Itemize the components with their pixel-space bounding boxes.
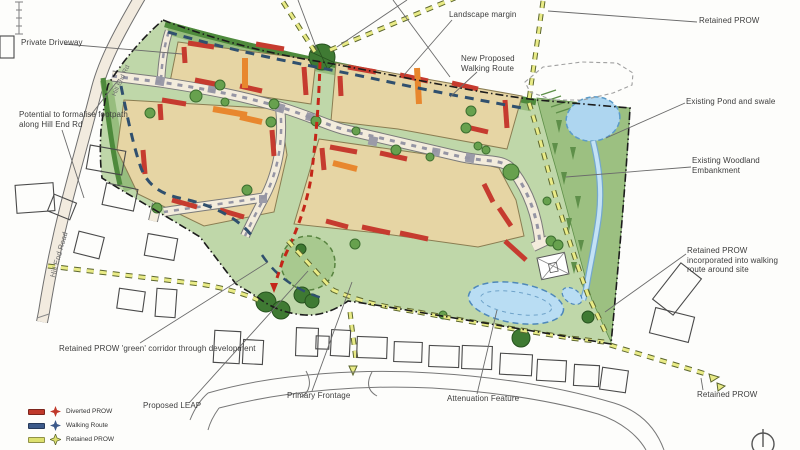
masterplan-drawing — [0, 0, 800, 450]
label-retained-prow-bottom: Retained PROW — [697, 390, 757, 400]
label-private-driveway: Private Driveway — [21, 38, 83, 48]
label-primary-frontage: Primary Frontage — [287, 391, 350, 401]
label-landscape-margin: Landscape margin — [449, 10, 516, 20]
walking-route-arrow-icon — [50, 420, 61, 431]
legend-label-diverted-prow: Diverted PROW — [66, 408, 112, 415]
diverted-prow-dash-swatch — [28, 409, 45, 415]
label-proposed-leap: Proposed LEAP — [143, 401, 201, 411]
north-arrow-icon — [752, 429, 774, 450]
label-prow-incorporated: Retained PROW incorporated into walking … — [687, 246, 795, 275]
retained-prow-dash-swatch — [28, 437, 45, 443]
legend-item-retained-prow: Retained PROW — [28, 433, 114, 446]
diverted-prow-arrow-icon — [50, 406, 61, 417]
label-new-walking-route: New Proposed Walking Route — [461, 54, 525, 73]
legend-label-walking-route: Walking Route — [66, 422, 108, 429]
legend-item-walking-route: Walking Route — [28, 419, 114, 432]
existing-streets — [190, 371, 664, 450]
scale-marker — [15, 2, 23, 34]
legend-item-diverted-prow: Diverted PROW — [28, 405, 114, 418]
label-existing-pond: Existing Pond and swale — [686, 97, 775, 107]
site-masterplan: Private Driveway Potential to formalise … — [0, 0, 800, 450]
label-woodland-embankment: Existing Woodland Embankment — [692, 156, 778, 175]
existing-feature-outline — [525, 62, 633, 100]
label-attenuation-feature: Attenuation Feature — [447, 394, 519, 404]
label-retained-prow-top: Retained PROW — [699, 16, 759, 26]
retained-prow-arrow-icon — [50, 434, 61, 445]
label-green-corridor: Retained PROW 'green' corridor through d… — [59, 344, 256, 354]
legend: Diverted PROW Walking Route Retained PRO… — [28, 405, 114, 447]
legend-label-retained-prow: Retained PROW — [66, 436, 114, 443]
label-potential-footpath: Potential to formalise footpath along Hi… — [19, 110, 137, 129]
walking-route-dash-swatch — [28, 423, 45, 429]
